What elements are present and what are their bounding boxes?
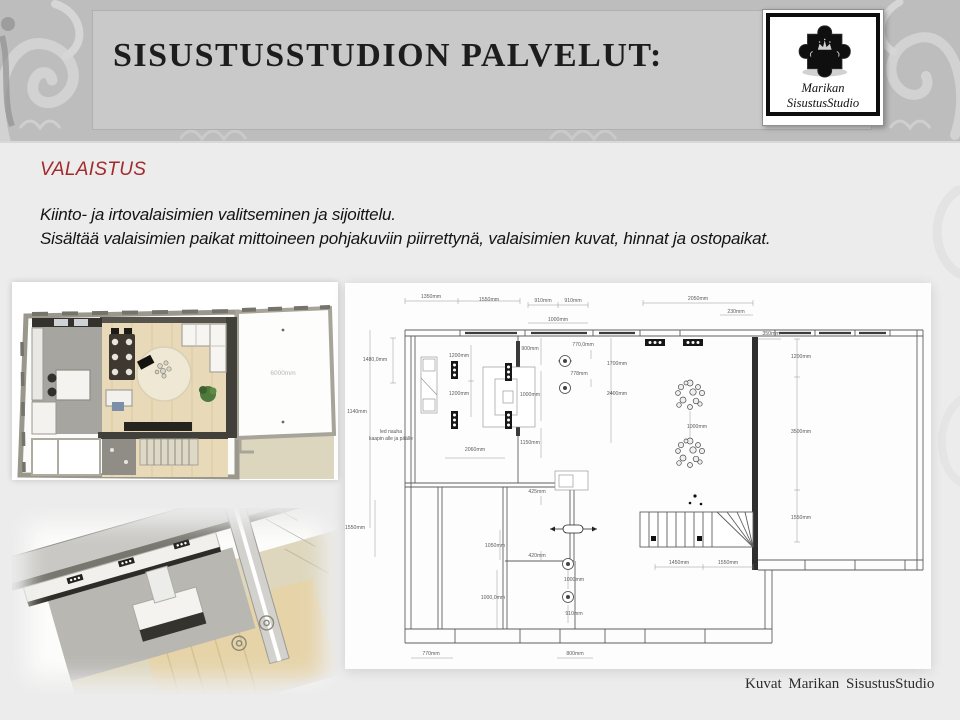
dim-label: 2050mm (688, 296, 708, 302)
logo-box: Marikan SisustusStudio (762, 9, 884, 126)
dim-label: 1550mm (479, 297, 499, 303)
dim-label: 1480,0mm (363, 357, 388, 363)
body-line-2: Sisältää valaisimien paikat mittoineen p… (40, 227, 770, 251)
dim-label: 1550mm (791, 515, 811, 521)
page-title: SISUSTUSSTUDION PALVELUT: (113, 37, 663, 75)
stairs-plan (640, 512, 753, 547)
image-credit-caption: Kuvat Marikan SisustusStudio (745, 676, 934, 693)
dim-label: 1050mm (485, 543, 505, 549)
feathered-edge (12, 508, 338, 694)
dim-label: 3500mm (791, 429, 811, 435)
slide-root: SISUSTUSSTUDION PALVELUT: Marikan Sisust… (0, 0, 960, 720)
kitchen-island (56, 370, 90, 400)
dim-label: 1000mm (564, 577, 584, 583)
dim-label: 910mm (564, 298, 581, 304)
wall-dark-right (226, 317, 237, 438)
puzzle-piece-icon (784, 17, 862, 81)
dim-label: 770,0mm (572, 342, 594, 348)
dim-label: 350mm (762, 331, 779, 337)
dim-label: 230mm (727, 309, 744, 315)
dim-label: 1700mm (607, 361, 627, 367)
body-paragraph: Kiinto- ja irtovalaisimien valitseminen … (40, 203, 770, 251)
kitchen-fixtures (421, 357, 588, 490)
dim-label: 425mm (528, 489, 545, 495)
lighting-plan-drawing: 1350mm 1550mm 910mm 910mm 1000mm 2050mm … (345, 283, 931, 669)
tube-light-icon (550, 525, 597, 533)
dim-label: 1200mm (791, 354, 811, 360)
dim-label: 1200mm (449, 391, 469, 397)
dim-label: 910mm (534, 298, 551, 304)
led-note-line1: led nauha (380, 429, 402, 435)
stairs (140, 439, 198, 465)
dim-label: 770mm (422, 651, 439, 657)
section-heading: VALAISTUS (40, 159, 146, 181)
track-light-icon (645, 339, 703, 346)
dim-label: 2400mm (607, 391, 627, 397)
damask-pattern-left (0, 0, 100, 141)
logo-name-line1: Marikan (801, 81, 844, 97)
dim-label: 900mm (521, 346, 538, 352)
floor-plan-render: 6000mm (12, 282, 338, 480)
dim-label: 420mm (528, 553, 545, 559)
title-panel: SISUSTUSSTUDION PALVELUT: (92, 10, 872, 130)
led-note-line2: kaapin alle ja päälle (369, 436, 413, 442)
dim-label: 1000,0mm (481, 595, 506, 601)
dim-label: 2060mm (465, 447, 485, 453)
dim-label: 1150mm (520, 440, 540, 446)
room-size-label: 6000mm (270, 370, 295, 377)
kitchen-3d-render (12, 508, 338, 694)
dim-label: 1350mm (421, 294, 441, 300)
dim-label: 1000mm (548, 317, 568, 323)
dim-label: 1000mm (687, 424, 707, 430)
dim-label: 1140mm (347, 409, 367, 415)
body-line-1: Kiinto- ja irtovalaisimien valitseminen … (40, 203, 770, 227)
logo-name-line2: SisustusStudio (787, 96, 859, 112)
media-bench (124, 422, 192, 431)
dim-label: 1550mm (345, 525, 365, 531)
dim-label: 800mm (566, 651, 583, 657)
dim-label: 1200mm (449, 353, 469, 359)
dim-label: 910mm (565, 611, 582, 617)
dim-label: 1550mm (718, 560, 738, 566)
dim-label: 1450mm (669, 560, 689, 566)
header-band: SISUSTUSSTUDION PALVELUT: Marikan Sisust… (0, 0, 960, 143)
logo-frame: Marikan SisustusStudio (766, 13, 880, 116)
dim-label: 778mm (570, 371, 587, 377)
dim-label: 1000mm (520, 392, 540, 398)
